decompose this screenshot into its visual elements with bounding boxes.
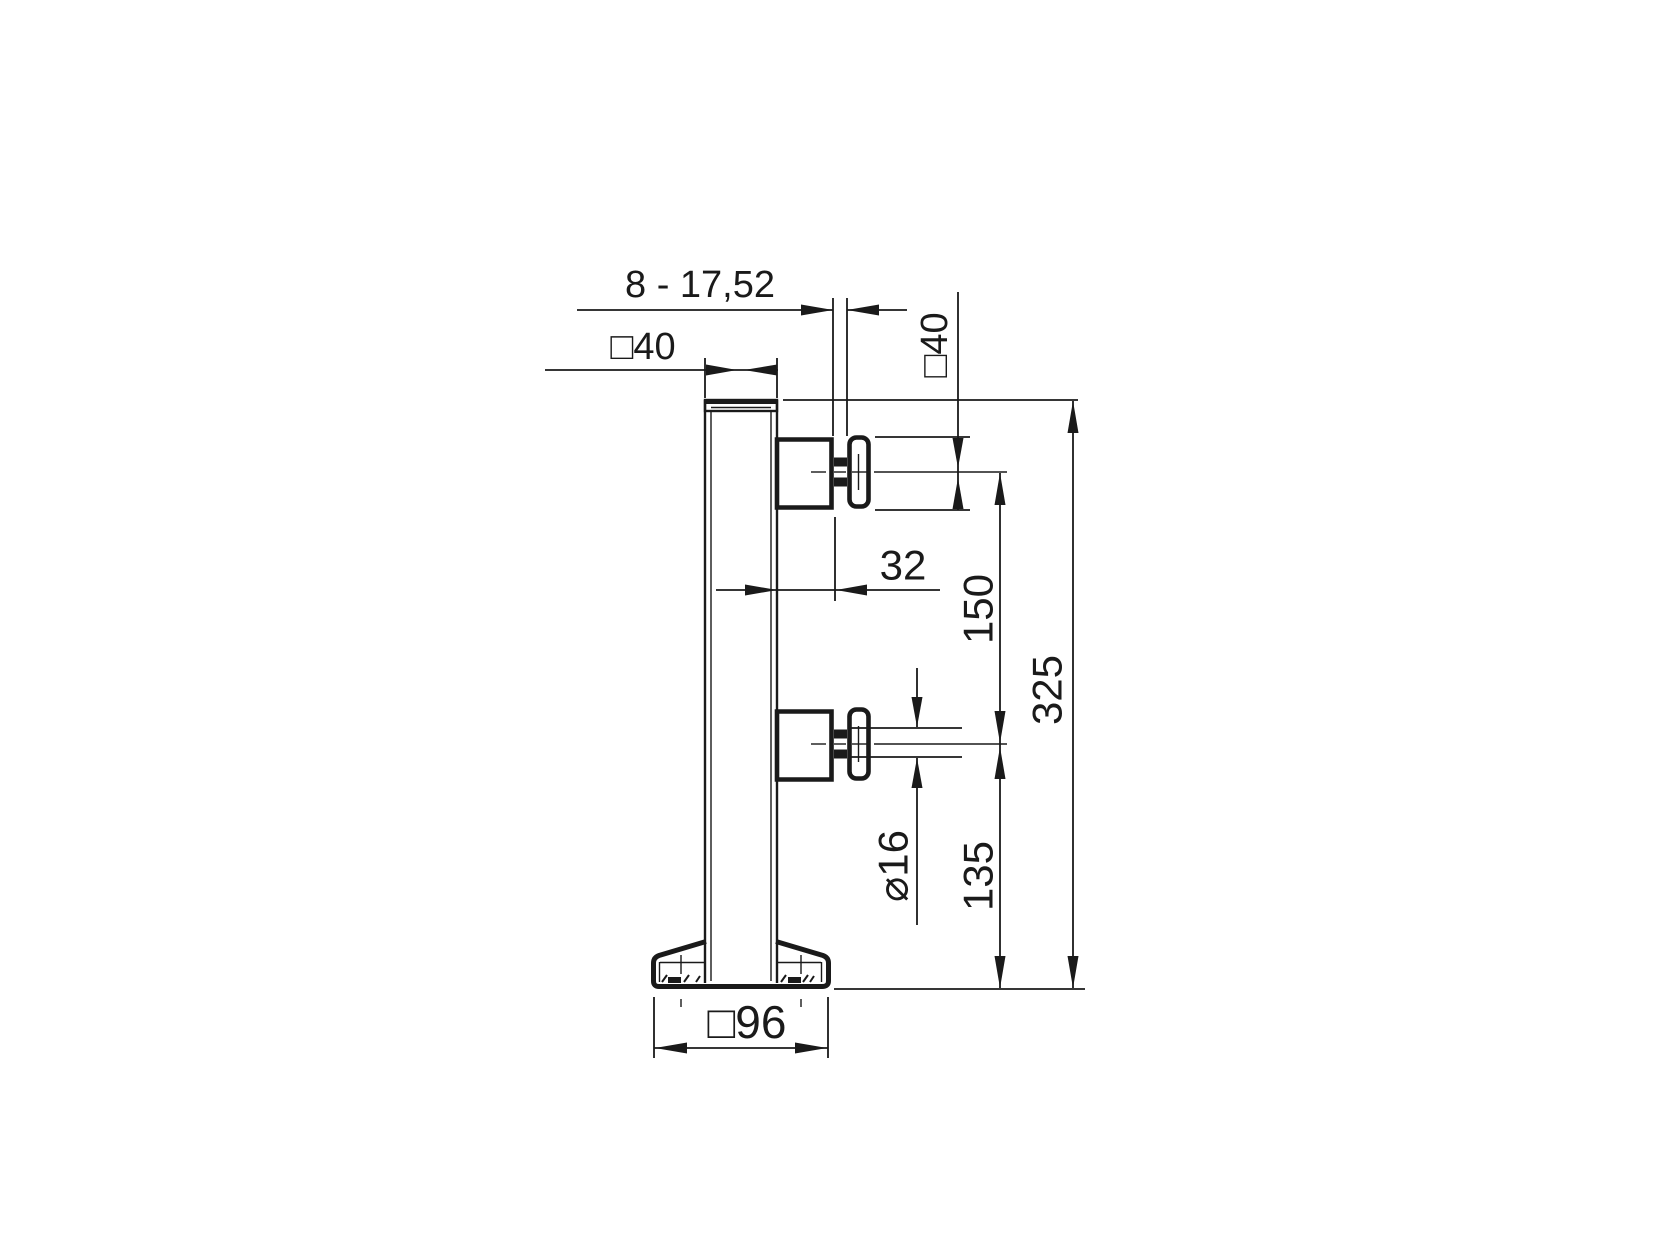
stud-diameter-label: ⌀16 [870, 830, 917, 902]
dim-stud-diameter: ⌀16 [851, 668, 962, 925]
drawing-canvas: 8 - 17,52 □40 □40 32 150 135 [0, 0, 1680, 1260]
glass-thickness-label: 8 - 17,52 [625, 264, 775, 306]
dim-base-width: □96 [654, 996, 828, 1058]
total-height-label: 325 [1024, 655, 1071, 725]
base-width-label: □96 [708, 996, 787, 1048]
post [705, 400, 777, 983]
dim-adapter-height: □40 [875, 292, 970, 510]
post-width-label: □40 [610, 326, 675, 368]
glass-offset-label: 32 [880, 542, 927, 589]
bottom-point-label: 135 [955, 841, 1002, 911]
dim-glass-offset: 32 [716, 517, 940, 601]
dim-bottom-point: 135 [955, 744, 1006, 988]
dim-post-width: □40 [545, 326, 778, 398]
point-spacing-label: 150 [955, 574, 1002, 644]
adapter-height-label: □40 [914, 312, 956, 377]
technical-drawing: 8 - 17,52 □40 □40 32 150 135 [0, 0, 1680, 1260]
dim-point-spacing: 150 [955, 473, 1006, 744]
